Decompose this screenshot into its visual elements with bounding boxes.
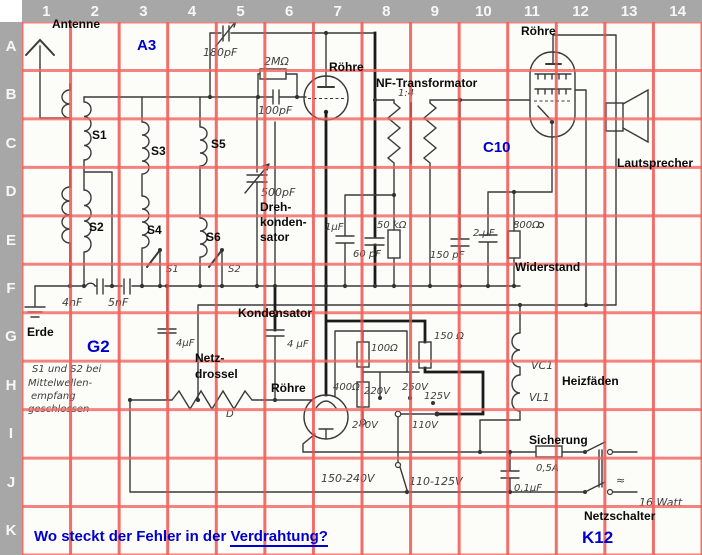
label-110v: 110V xyxy=(412,420,439,431)
label-2uf: 2 μF xyxy=(473,228,495,239)
label-50kohm: 50 kΩ xyxy=(377,220,407,231)
label-netzdrossel: Netz- drossel xyxy=(195,350,238,382)
question-text: Wo steckt der Fehler in der Verdrahtung? xyxy=(34,528,328,545)
label-400ohm: 400Ω xyxy=(333,382,360,393)
label-drehkondensator: Dreh- konden- sator xyxy=(260,200,307,245)
coil-s5-s6 xyxy=(200,97,207,286)
capacitor-1uf xyxy=(336,195,394,286)
schematic-grid-puzzle: 180pF 2MΩ 100pF 1:4 500pF S1 S2 4nF 5nF … xyxy=(0,0,702,555)
column-header-11: 11 xyxy=(508,0,557,22)
label-lautsprecher: Lautsprecher xyxy=(617,156,693,171)
tube-output xyxy=(530,35,575,228)
label-nf-transformator: NF-Transformator xyxy=(376,76,477,91)
label-s4: S4 xyxy=(147,223,162,238)
question-prefix: Wo steckt der Fehler in der xyxy=(34,528,230,545)
gridref-a3: A3 xyxy=(137,37,156,54)
column-header-1: 1 xyxy=(22,0,71,22)
label-netz-line1: Netz- xyxy=(195,350,238,366)
label-range-high: 150-240V xyxy=(321,472,376,485)
label-s3: S3 xyxy=(151,144,166,159)
label-netz-line2: drossel xyxy=(195,366,238,382)
tube-rectifier xyxy=(303,395,348,452)
label-60pf: 60 pF xyxy=(353,249,381,260)
column-header-6: 6 xyxy=(265,0,314,22)
label-roehre-out: Röhre xyxy=(521,24,556,39)
label-125v: 125V xyxy=(424,391,451,402)
label-1uf: 1μF xyxy=(325,222,344,233)
voltage-selector xyxy=(335,331,435,490)
row-header-I: I xyxy=(0,410,22,458)
resistor-150ohm xyxy=(419,342,431,368)
chassis-bus xyxy=(35,279,520,294)
label-dreh-line2: konden- xyxy=(260,215,307,230)
label-800ohm: 800Ω xyxy=(513,220,540,231)
label-4uf-mid: 4 μF xyxy=(287,339,309,350)
column-header-14: 14 xyxy=(653,0,702,22)
resistor-2mohm xyxy=(258,69,297,97)
row-header-G: G xyxy=(0,313,22,361)
label-roehre-rf: Röhre xyxy=(329,60,364,75)
label-sicherung: Sicherung xyxy=(529,433,588,448)
label-4nf: 4nF xyxy=(62,296,83,309)
row-header-E: E xyxy=(0,216,22,264)
column-header-10: 10 xyxy=(459,0,508,22)
label-240v: 240V xyxy=(352,420,379,431)
label-fuse-rating: 0,5A xyxy=(536,463,559,474)
label-2mohm: 2MΩ xyxy=(264,55,289,68)
label-roehre-ps: Röhre xyxy=(271,381,306,396)
row-header-D: D xyxy=(0,167,22,215)
label-dreh-line1: Dreh- xyxy=(260,200,307,215)
label-dreh-line3: sator xyxy=(260,230,307,245)
label-choke-d: D xyxy=(226,409,234,420)
column-header-8: 8 xyxy=(362,0,411,22)
grid-corner-cell xyxy=(0,0,22,22)
label-500pf: 500pF xyxy=(261,186,296,199)
label-vc1: VC1 xyxy=(531,359,553,372)
row-header-F: F xyxy=(0,264,22,312)
circuit-schematic: 180pF 2MΩ 100pF 1:4 500pF S1 S2 4nF 5nF … xyxy=(0,0,702,555)
capacitor-4uf-left xyxy=(158,286,176,400)
column-header-13: 13 xyxy=(605,0,654,22)
label-s1: S1 xyxy=(92,128,107,143)
column-header-7: 7 xyxy=(313,0,362,22)
label-4uf-left: 4μF xyxy=(176,338,195,349)
coil-s3-s4 xyxy=(142,97,149,286)
gridref-k12: K12 xyxy=(582,528,613,548)
label-100pf: 100pF xyxy=(258,104,293,117)
tube-rf xyxy=(304,33,348,120)
label-01uf: 0,1μF xyxy=(514,483,542,494)
label-5nf: 5nF xyxy=(108,296,129,309)
label-vl1: VL1 xyxy=(529,391,550,404)
capacitor-180pf xyxy=(210,21,375,97)
note-line-2: Mittelwellen- xyxy=(28,378,93,389)
gridref-g2: G2 xyxy=(87,337,110,357)
label-switch-s2: S2 xyxy=(228,264,241,275)
label-100ohm: 100Ω xyxy=(371,343,398,354)
netzschalter-symbol xyxy=(583,442,637,495)
column-header-5: 5 xyxy=(216,0,265,22)
row-header-C: C xyxy=(0,119,22,167)
label-180pf: 180pF xyxy=(203,46,238,59)
earth-symbol xyxy=(25,286,45,317)
coil-s1 xyxy=(84,97,91,160)
label-150ohm: 150 Ω xyxy=(434,331,464,342)
row-header-K: K xyxy=(0,507,22,555)
row-header-B: B xyxy=(0,70,22,118)
heater-filaments xyxy=(480,305,520,452)
label-heizfaeden: Heizfäden xyxy=(562,374,619,389)
label-150pf: 150 pF xyxy=(430,250,465,261)
switch-s1 xyxy=(147,248,162,286)
label-widerstand: Widerstand xyxy=(515,260,580,275)
junction xyxy=(435,412,440,417)
label-range-low: 110-125V xyxy=(409,475,464,488)
gridref-c10: C10 xyxy=(483,139,511,156)
note-line-1: S1 und S2 bei xyxy=(32,364,101,375)
column-header-3: 3 xyxy=(119,0,168,22)
row-header-J: J xyxy=(0,458,22,506)
label-s6: S6 xyxy=(206,230,221,245)
question-highlight: Verdrahtung? xyxy=(230,528,328,547)
label-220v: 220V xyxy=(364,386,391,397)
column-header-12: 12 xyxy=(556,0,605,22)
column-header-4: 4 xyxy=(168,0,217,22)
label-s5: S5 xyxy=(211,137,226,152)
label-netzschalter: Netzschalter xyxy=(584,509,655,524)
label-s2: S2 xyxy=(89,220,104,235)
switch-s2 xyxy=(209,248,224,286)
label-kondensator: Kondensator xyxy=(238,306,312,321)
column-header-9: 9 xyxy=(411,0,460,22)
note-line-4: geschlossen xyxy=(28,404,89,415)
label-erde: Erde xyxy=(27,325,54,340)
column-header-2: 2 xyxy=(71,0,120,22)
note-line-3: empfang xyxy=(31,391,76,402)
label-switch-s1: S1 xyxy=(166,264,179,275)
row-header-A: A xyxy=(0,22,22,70)
capacitor-100pf xyxy=(273,90,279,104)
ac-symbol: ≈ xyxy=(616,474,625,487)
label-16watt: 16 Watt xyxy=(639,496,683,509)
row-header-H: H xyxy=(0,361,22,409)
coil-s1-s2-primary xyxy=(62,84,70,286)
resistor-50kohm xyxy=(388,195,400,286)
